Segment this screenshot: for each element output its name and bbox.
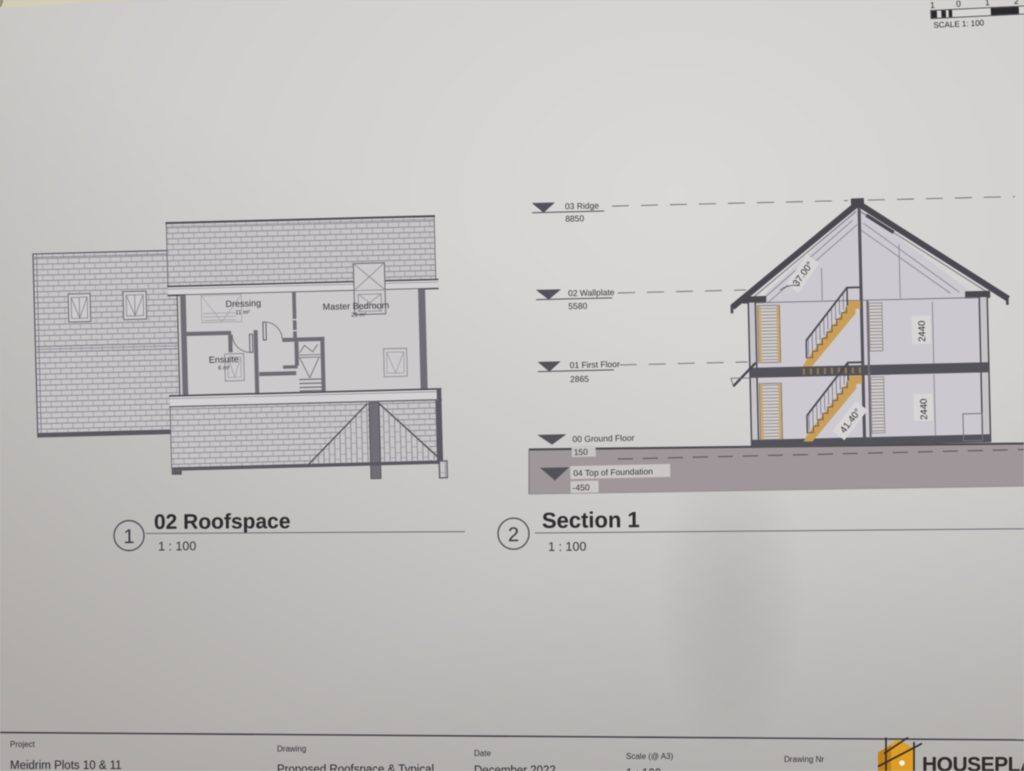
svg-text:Master Bedroom: Master Bedroom <box>323 300 390 312</box>
svg-text:11 m²: 11 m² <box>235 310 250 316</box>
svg-text:Meidrim Plots 10 & 11: Meidrim Plots 10 & 11 <box>10 760 122 771</box>
svg-text:1: 1 <box>123 526 134 548</box>
svg-text:00 Ground Floor: 00 Ground Floor <box>572 433 634 444</box>
svg-text:December 2022: December 2022 <box>474 765 556 771</box>
svg-text:Drawing: Drawing <box>277 745 306 754</box>
svg-text:2440: 2440 <box>917 321 928 342</box>
svg-text:0: 0 <box>956 0 961 9</box>
svg-text:2: 2 <box>508 524 519 546</box>
svg-text:02 Roofspace: 02 Roofspace <box>154 510 291 534</box>
svg-text:1: 1 <box>985 0 990 7</box>
svg-text:Dressing: Dressing <box>225 298 261 309</box>
svg-text:1 : 100: 1 : 100 <box>158 539 196 553</box>
svg-text:1: 1 <box>930 0 935 10</box>
svg-text:150: 150 <box>574 447 589 457</box>
svg-text:01 First Floor: 01 First Floor <box>570 359 620 370</box>
svg-text:5580: 5580 <box>568 301 587 311</box>
svg-text:-450: -450 <box>572 482 590 492</box>
svg-text:04 Top of Foundation: 04 Top of Foundation <box>573 466 653 478</box>
svg-text:Date: Date <box>474 749 491 758</box>
svg-text:Project: Project <box>10 740 36 749</box>
svg-text:2440: 2440 <box>919 399 930 420</box>
svg-text:2865: 2865 <box>570 374 589 384</box>
svg-text:HOUSEPLAN: HOUSEPLAN <box>922 754 1024 771</box>
svg-text:Ensuite: Ensuite <box>209 354 239 365</box>
svg-text:02 Wallplate: 02 Wallplate <box>568 287 615 298</box>
svg-text:Section 1: Section 1 <box>542 507 640 533</box>
svg-text:8850: 8850 <box>565 213 584 223</box>
svg-text:Proposed Roofspace & Typical: Proposed Roofspace & Typical <box>277 764 434 771</box>
svg-text:Scale (@ A3): Scale (@ A3) <box>626 752 674 761</box>
svg-text:6 m²: 6 m² <box>218 365 230 371</box>
svg-text:1 : 100: 1 : 100 <box>548 540 586 554</box>
svg-text:Drawing Nr: Drawing Nr <box>784 755 824 764</box>
svg-text:29 m²: 29 m² <box>351 312 366 318</box>
svg-text:2: 2 <box>1014 0 1019 6</box>
svg-text:03 Ridge: 03 Ridge <box>565 200 600 211</box>
